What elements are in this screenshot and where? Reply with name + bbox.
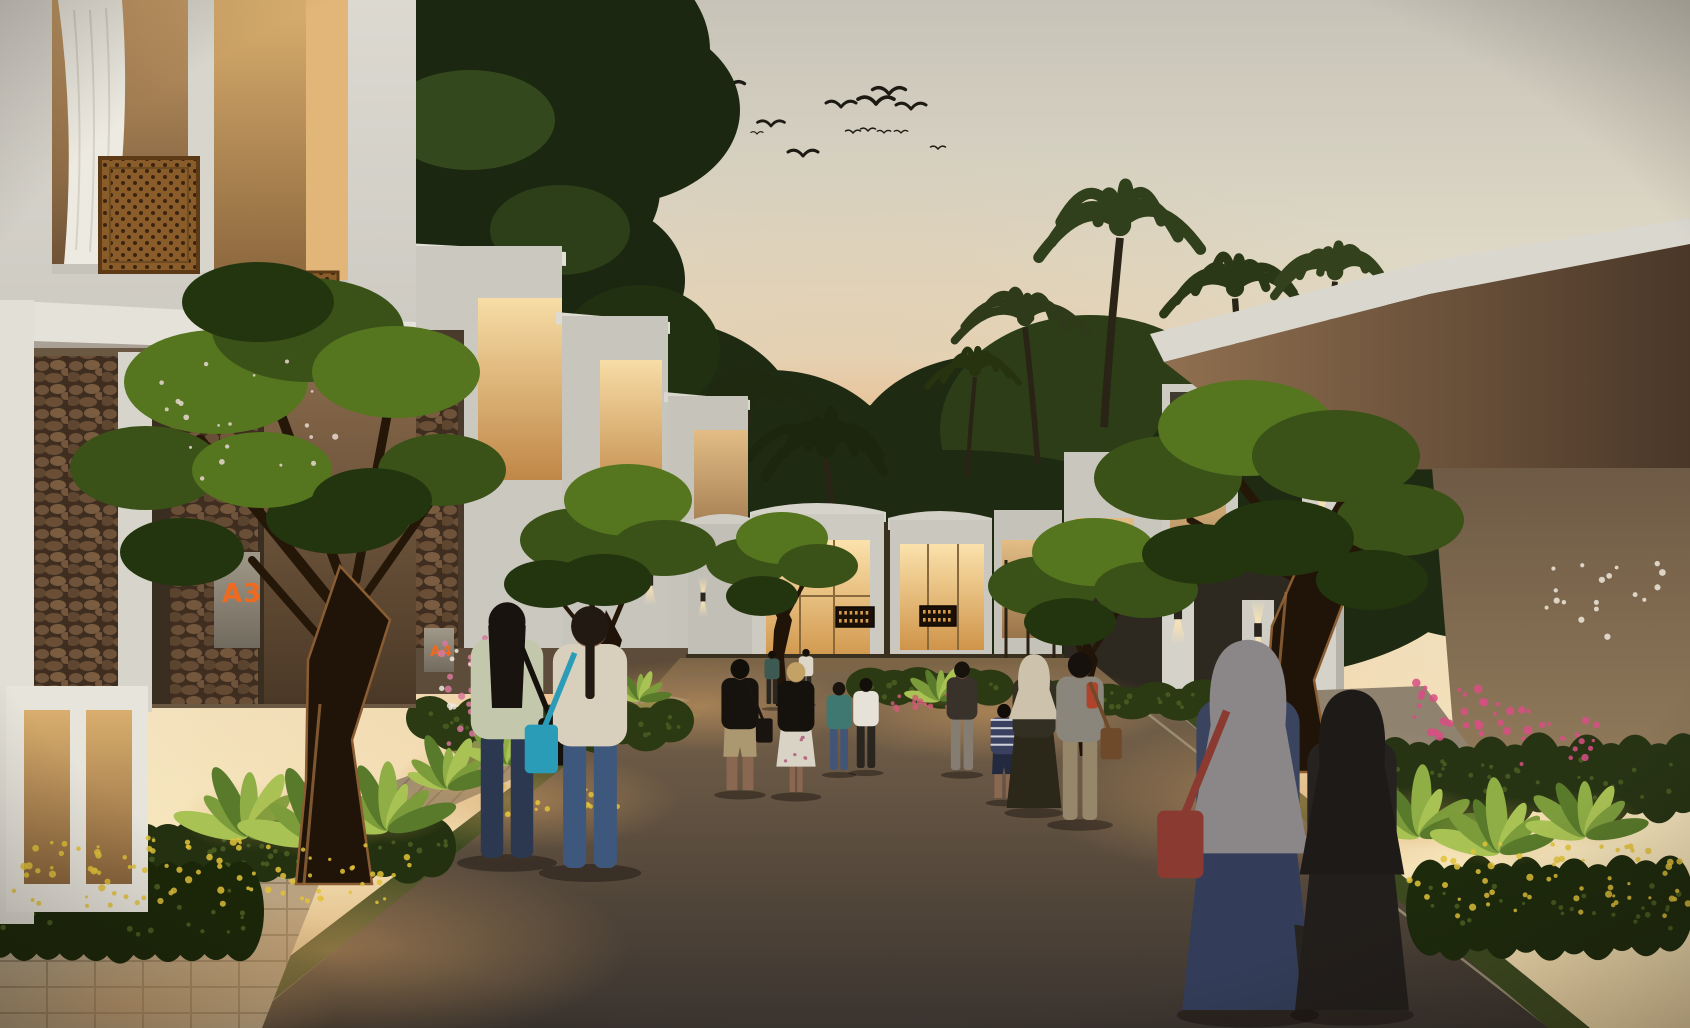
rendered-scene-svg: A3 A4 bbox=[0, 0, 1690, 1028]
vignette bbox=[0, 0, 1690, 1028]
artist-rendering-residential-street: A3 A4 bbox=[0, 0, 1690, 1028]
